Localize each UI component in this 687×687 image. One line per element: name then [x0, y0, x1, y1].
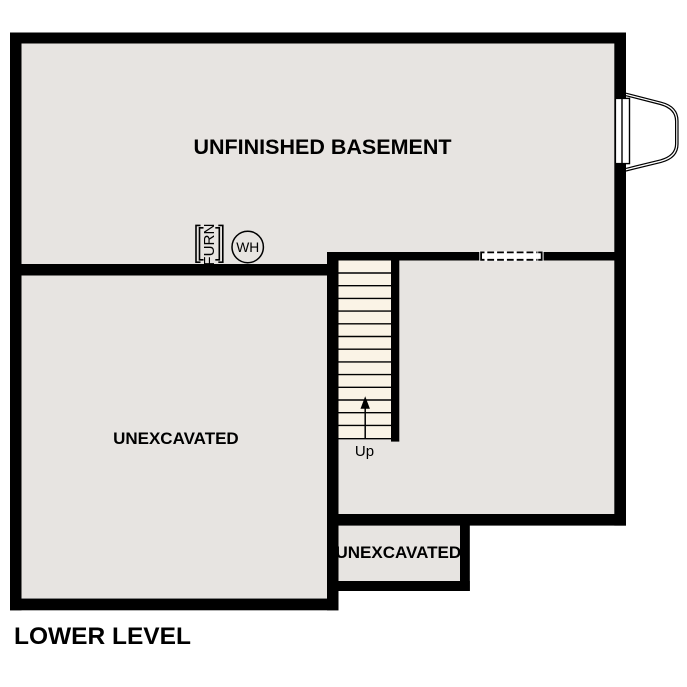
- svg-text:UNEXCAVATED: UNEXCAVATED: [113, 429, 239, 448]
- svg-text:Up: Up: [355, 443, 374, 460]
- svg-text:UNEXCAVATED: UNEXCAVATED: [335, 543, 461, 562]
- svg-text:FURN: FURN: [201, 224, 218, 266]
- svg-text:WH: WH: [236, 240, 259, 255]
- svg-text:UNFINISHED BASEMENT: UNFINISHED BASEMENT: [193, 135, 451, 159]
- svg-text:LOWER LEVEL: LOWER LEVEL: [14, 623, 191, 650]
